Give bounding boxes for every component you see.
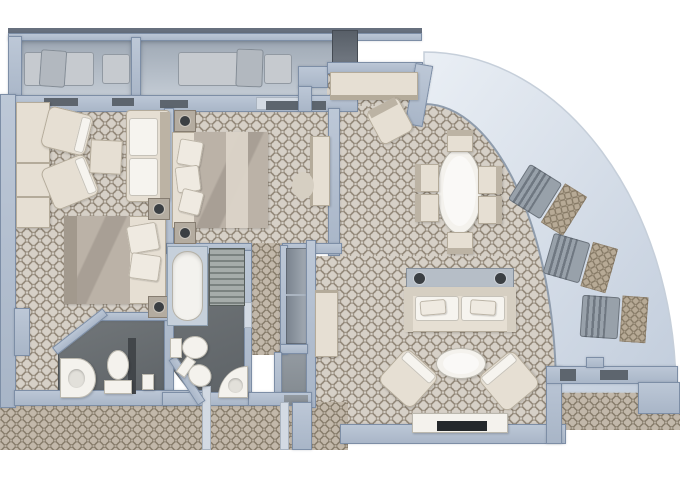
sofa [404,287,516,332]
coffee-table [436,348,486,379]
side-table [89,139,123,175]
sink-basin [68,369,85,388]
lamp [154,302,164,312]
closet-south-wall [280,344,308,354]
right-corridor-wall [638,382,680,414]
sofa-pillow [419,299,446,316]
armchair [377,347,441,411]
loveseat-cushion [129,118,158,156]
wall-below-vestibule [292,402,312,450]
left-outer-wall [0,94,16,408]
veranda-wall-notch-1 [560,369,576,381]
corridor-divider-1 [202,386,211,450]
toilet [104,350,132,396]
master-bed [172,132,268,228]
balcony-chaise-cushion [39,49,68,88]
corridor-divider-2 [280,402,289,450]
cabinet-edge [315,290,338,293]
coffee-table-top [443,353,479,374]
lounger-back-stripes [585,295,608,338]
window-strip-4 [266,101,326,110]
balcony-chaise [178,52,242,86]
tv-console [412,413,508,433]
walls-and-furniture-layer [0,0,680,486]
loveseat-cushion [129,158,158,196]
sofa-arm [404,287,413,332]
veranda-lounger [542,231,618,293]
lamp [414,273,425,284]
loveseat [126,110,170,202]
master-bed-runner [226,132,248,228]
dresser-edge [310,136,313,206]
lamp [154,204,164,214]
dining-chair-back [447,130,473,136]
desk-edge [330,95,418,99]
toilet-tank [170,338,182,358]
window-strip-2 [112,98,134,106]
corner-wall-b [298,86,312,112]
vanity-stool [292,172,314,199]
bed-2-pillow [126,222,160,255]
sink-basin [228,378,243,393]
floor-plan-image [0,0,680,486]
loveseat-back [160,112,170,200]
dining-chair-back [415,194,421,222]
toilet-tank [104,380,132,394]
dining-chair [447,232,473,254]
veranda-lounger [507,162,587,236]
sofa-console [406,268,514,289]
sofa-back [413,287,507,296]
dining-chair [478,196,502,224]
dining-chair-back [415,164,421,192]
minibar-cabinet [315,290,338,357]
dining-table [437,148,482,234]
bathroom-door [244,302,252,328]
wardrobe-shelf-line [16,196,50,198]
corner-wall-a [298,66,328,88]
nightstand [174,222,196,244]
bathroom-shelf [142,374,154,390]
tv-screen [437,421,487,431]
sofa-arm [507,287,516,332]
desk-chair-back [368,97,398,118]
dining-chair [447,130,473,152]
dining-chair-back [496,166,502,194]
balcony-table [102,54,130,84]
veranda-pillar [586,357,604,368]
shower [209,248,245,306]
dining-chair-back [496,196,502,224]
armchair-cushion [73,116,91,153]
dining-chair [478,166,502,194]
window-strip-3 [160,100,188,108]
bed-2-pillow [128,252,161,282]
lamp [180,116,190,126]
bathtub-basin [172,251,203,321]
nightstand [174,110,196,132]
balcony-chaise-cushion [235,49,263,88]
lamp [495,273,506,284]
sofa-pillow [470,299,497,316]
corner-sink [218,366,248,398]
balcony-table [264,54,292,84]
dining-chair [415,194,439,222]
closet [286,248,308,344]
lounger-mat [619,296,648,344]
corner-sink [60,358,96,398]
armchair-cushion [480,352,518,386]
armchair-cushion [400,350,436,384]
top-wall [8,33,422,41]
nightstand [148,198,170,220]
left-wall-jut [14,308,30,356]
dining-table-top [443,156,476,226]
dining-chair-back [447,248,473,254]
wardrobe-shelf-line [16,162,50,164]
bed-2-runner [64,216,77,304]
armchair [477,349,542,414]
toilet-bowl [107,350,129,380]
balcony-divider-wall [131,37,141,100]
master-bed-pillow [176,138,204,168]
veranda-wall-notch-2 [600,370,628,380]
bathtub [167,246,208,326]
desk [330,72,418,100]
bed-2 [64,216,166,304]
guest-bath-chamfer-wall [52,308,108,354]
veranda-lounger [579,293,648,343]
dining-chair [415,164,439,192]
lamp [180,228,190,238]
dresser [310,136,330,206]
closet-door-divider [286,294,308,296]
